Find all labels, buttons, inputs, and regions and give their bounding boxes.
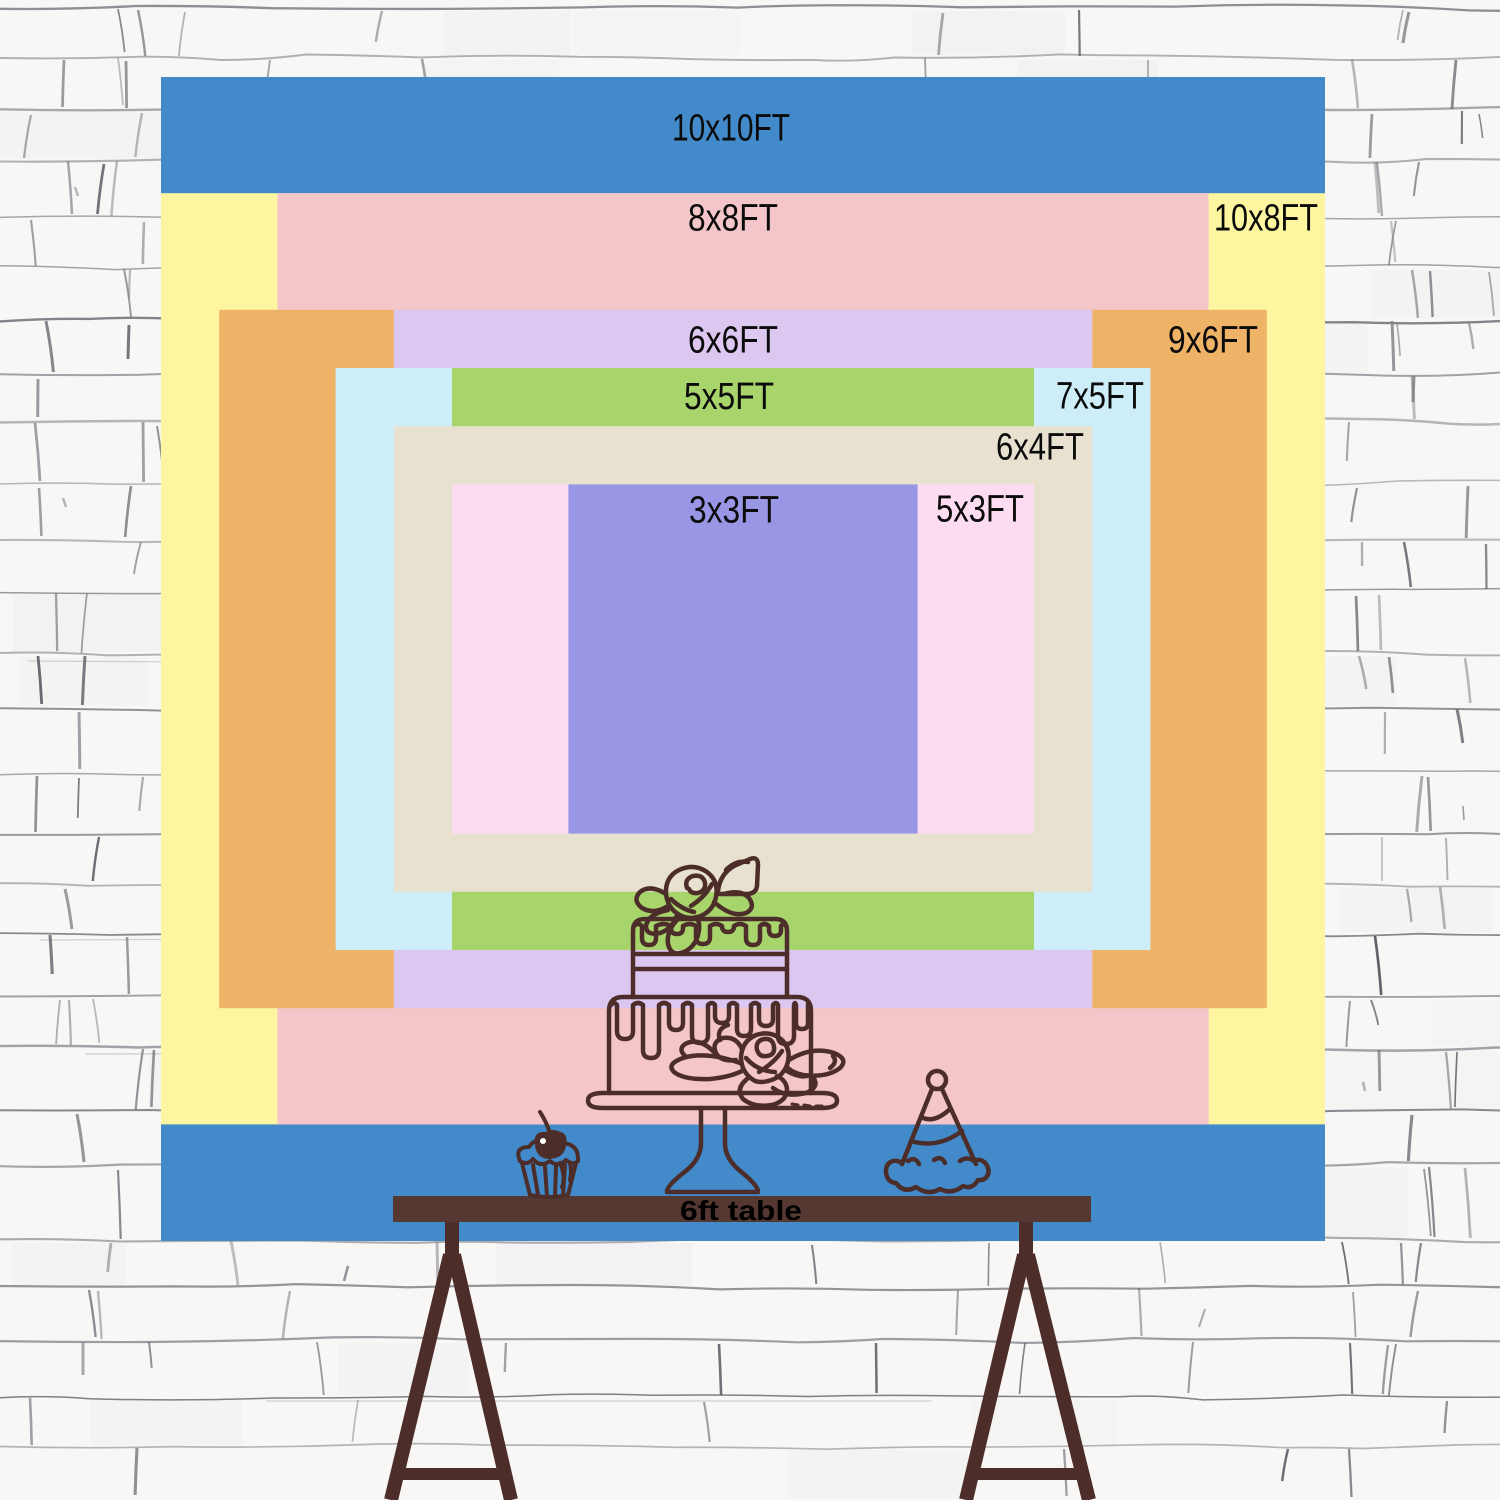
svg-text:5x5FT: 5x5FT: [684, 376, 774, 418]
svg-text:6x6FT: 6x6FT: [688, 320, 778, 362]
svg-text:8x8FT: 8x8FT: [688, 198, 778, 240]
svg-text:5x3FT: 5x3FT: [936, 489, 1024, 531]
svg-text:7x5FT: 7x5FT: [1056, 376, 1144, 418]
svg-text:10x8FT: 10x8FT: [1214, 198, 1318, 240]
svg-text:6ft table: 6ft table: [680, 1195, 802, 1226]
svg-text:10x10FT: 10x10FT: [672, 108, 790, 150]
svg-text:9x6FT: 9x6FT: [1168, 320, 1258, 362]
svg-text:3x3FT: 3x3FT: [689, 490, 779, 532]
svg-text:6x4FT: 6x4FT: [996, 427, 1084, 469]
